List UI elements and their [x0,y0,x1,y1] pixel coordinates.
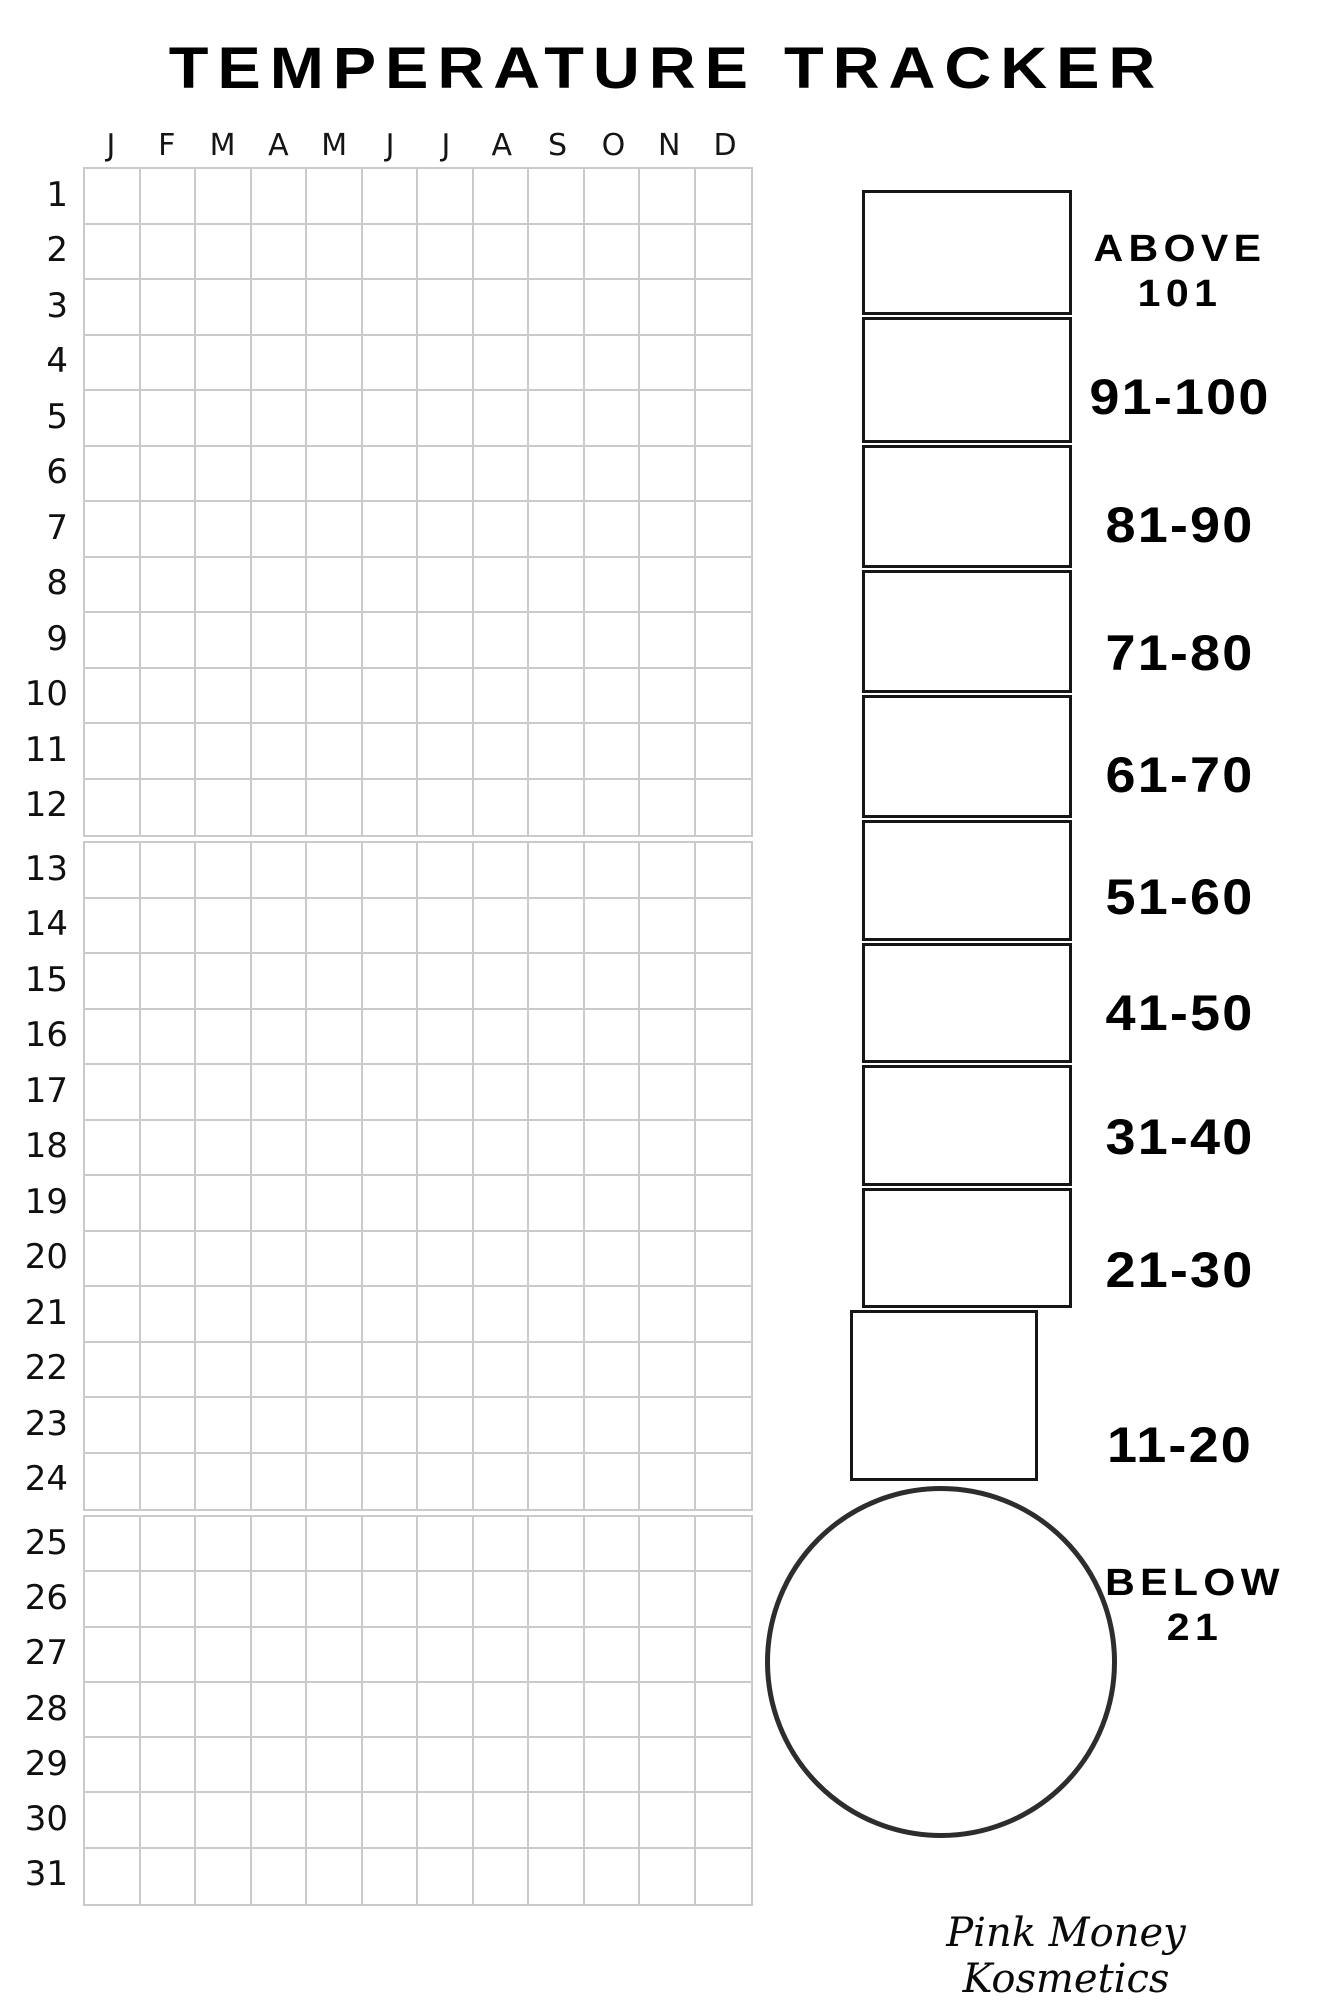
grid-cell[interactable] [696,1683,752,1738]
grid-cell[interactable] [141,1738,197,1793]
grid-cell[interactable] [85,502,141,558]
grid-cell[interactable] [141,169,197,225]
grid-cell[interactable] [141,280,197,336]
grid-cell[interactable] [363,558,419,614]
grid-cell[interactable] [363,724,419,780]
grid-cell[interactable] [307,613,363,669]
grid-cell[interactable] [474,502,530,558]
grid-cell[interactable] [418,780,474,836]
grid-cell[interactable] [363,1517,419,1572]
grid-cell[interactable] [418,1398,474,1454]
grid-cell[interactable] [196,1572,252,1627]
grid-cell[interactable] [529,502,585,558]
grid-cell[interactable] [196,1343,252,1399]
grid-cell[interactable] [307,1572,363,1627]
grid-cell[interactable] [640,558,696,614]
grid-cell[interactable] [141,1572,197,1627]
grid-cell[interactable] [418,336,474,392]
grid-cell[interactable] [696,954,752,1010]
grid-cell[interactable] [307,391,363,447]
grid-cell[interactable] [363,1454,419,1510]
grid-cell[interactable] [141,1793,197,1848]
grid-cell[interactable] [307,169,363,225]
grid-cell[interactable] [252,1287,308,1343]
grid-cell[interactable] [529,1454,585,1510]
grid-cell[interactable] [585,169,641,225]
grid-cell[interactable] [85,1572,141,1627]
grid-cell[interactable] [696,1454,752,1510]
grid-cell[interactable] [196,280,252,336]
grid-cell[interactable] [252,1343,308,1399]
grid-cell[interactable] [474,1232,530,1288]
grid-cell[interactable] [585,613,641,669]
grid-cell[interactable] [85,1849,141,1904]
grid-cell[interactable] [474,336,530,392]
grid-cell[interactable] [85,780,141,836]
grid-cell[interactable] [141,899,197,955]
grid-cell[interactable] [363,613,419,669]
grid-cell[interactable] [85,1517,141,1572]
grid-cell[interactable] [85,1010,141,1066]
grid-cell[interactable] [252,1232,308,1288]
grid-cell[interactable] [196,1065,252,1121]
grid-cell[interactable] [640,1232,696,1288]
grid-cell[interactable] [307,1398,363,1454]
grid-cell[interactable] [196,169,252,225]
grid-cell[interactable] [585,1454,641,1510]
grid-cell[interactable] [141,225,197,281]
grid-cell[interactable] [141,447,197,503]
grid-cell[interactable] [640,1793,696,1848]
grid-cell[interactable] [696,1343,752,1399]
grid-cell[interactable] [418,1628,474,1683]
grid-cell[interactable] [141,1343,197,1399]
grid-cell[interactable] [585,502,641,558]
grid-cell[interactable] [196,225,252,281]
thermometer-segment[interactable] [862,1188,1072,1308]
grid-cell[interactable] [474,1287,530,1343]
grid-cell[interactable] [363,225,419,281]
grid-cell[interactable] [585,1010,641,1066]
grid-cell[interactable] [585,1683,641,1738]
grid-cell[interactable] [307,1454,363,1510]
grid-cell[interactable] [640,780,696,836]
grid-cell[interactable] [529,1232,585,1288]
grid-cell[interactable] [529,613,585,669]
grid-cell[interactable] [640,1628,696,1683]
grid-cell[interactable] [363,1849,419,1904]
grid-cell[interactable] [696,447,752,503]
grid-cell[interactable] [474,1738,530,1793]
grid-cell[interactable] [307,1628,363,1683]
grid-cell[interactable] [418,954,474,1010]
grid-cell[interactable] [252,780,308,836]
grid-cell[interactable] [640,1517,696,1572]
grid-cell[interactable] [252,1683,308,1738]
grid-cell[interactable] [529,1343,585,1399]
grid-cell[interactable] [307,1287,363,1343]
grid-cell[interactable] [85,447,141,503]
grid-cell[interactable] [418,1572,474,1627]
grid-cell[interactable] [252,1176,308,1232]
grid-cell[interactable] [196,1398,252,1454]
grid-cell[interactable] [363,336,419,392]
grid-cell[interactable] [307,1793,363,1848]
grid-cell[interactable] [529,1398,585,1454]
grid-cell[interactable] [363,169,419,225]
grid-cell[interactable] [474,843,530,899]
grid-cell[interactable] [640,843,696,899]
grid-cell[interactable] [696,1849,752,1904]
grid-cell[interactable] [585,843,641,899]
grid-cell[interactable] [85,724,141,780]
grid-cell[interactable] [252,613,308,669]
grid-cell[interactable] [85,280,141,336]
grid-cell[interactable] [141,1454,197,1510]
grid-cell[interactable] [252,1628,308,1683]
grid-cell[interactable] [640,1176,696,1232]
grid-cell[interactable] [585,225,641,281]
grid-cell[interactable] [307,843,363,899]
grid-cell[interactable] [640,391,696,447]
grid-cell[interactable] [418,1343,474,1399]
grid-cell[interactable] [307,1343,363,1399]
grid-cell[interactable] [418,391,474,447]
grid-cell[interactable] [585,558,641,614]
grid-cell[interactable] [696,336,752,392]
grid-cell[interactable] [252,225,308,281]
grid-cell[interactable] [585,280,641,336]
grid-cell[interactable] [85,1343,141,1399]
grid-cell[interactable] [363,1121,419,1177]
grid-cell[interactable] [640,899,696,955]
grid-cell[interactable] [307,899,363,955]
grid-cell[interactable] [529,225,585,281]
grid-cell[interactable] [307,1232,363,1288]
grid-cell[interactable] [418,1738,474,1793]
grid-cell[interactable] [696,1232,752,1288]
grid-cell[interactable] [529,843,585,899]
grid-cell[interactable] [141,724,197,780]
grid-cell[interactable] [418,613,474,669]
thermometer-segment[interactable] [862,820,1072,941]
grid-cell[interactable] [418,843,474,899]
grid-cell[interactable] [252,1398,308,1454]
thermometer-bulb[interactable] [765,1486,1117,1838]
grid-cell[interactable] [640,613,696,669]
grid-cell[interactable] [696,899,752,955]
grid-cell[interactable] [196,780,252,836]
grid-cell[interactable] [196,724,252,780]
grid-cell[interactable] [585,1287,641,1343]
grid-cell[interactable] [307,1010,363,1066]
grid-cell[interactable] [529,558,585,614]
grid-cell[interactable] [196,1793,252,1848]
grid-cell[interactable] [529,1738,585,1793]
grid-cell[interactable] [529,169,585,225]
grid-cell[interactable] [640,1121,696,1177]
grid-cell[interactable] [585,1176,641,1232]
grid-cell[interactable] [252,1010,308,1066]
thermometer-segment[interactable] [862,695,1072,818]
grid-cell[interactable] [585,1065,641,1121]
thermometer-segment[interactable] [862,1065,1072,1186]
grid-cell[interactable] [196,843,252,899]
grid-cell[interactable] [252,954,308,1010]
grid-cell[interactable] [196,1849,252,1904]
grid-cell[interactable] [252,391,308,447]
grid-cell[interactable] [696,1572,752,1627]
grid-cell[interactable] [141,1121,197,1177]
grid-cell[interactable] [363,502,419,558]
grid-cell[interactable] [585,391,641,447]
grid-cell[interactable] [196,613,252,669]
grid-cell[interactable] [696,1121,752,1177]
grid-cell[interactable] [252,1121,308,1177]
grid-cell[interactable] [474,1793,530,1848]
grid-cell[interactable] [696,724,752,780]
grid-cell[interactable] [252,1065,308,1121]
grid-cell[interactable] [418,1454,474,1510]
grid-cell[interactable] [640,336,696,392]
grid-cell[interactable] [474,447,530,503]
grid-cell[interactable] [696,613,752,669]
grid-cell[interactable] [474,954,530,1010]
grid-cell[interactable] [307,780,363,836]
grid-cell[interactable] [307,280,363,336]
grid-cell[interactable] [474,1454,530,1510]
grid-cell[interactable] [640,225,696,281]
grid-cell[interactable] [196,899,252,955]
grid-cell[interactable] [640,954,696,1010]
grid-cell[interactable] [196,558,252,614]
grid-cell[interactable] [585,1793,641,1848]
grid-cell[interactable] [585,1121,641,1177]
grid-cell[interactable] [418,1793,474,1848]
grid-cell[interactable] [529,1010,585,1066]
grid-cell[interactable] [418,1065,474,1121]
grid-cell[interactable] [85,613,141,669]
grid-cell[interactable] [252,280,308,336]
grid-cell[interactable] [474,669,530,725]
grid-cell[interactable] [196,669,252,725]
grid-cell[interactable] [696,1738,752,1793]
grid-cell[interactable] [363,1628,419,1683]
grid-cell[interactable] [85,1793,141,1848]
grid-cell[interactable] [252,1849,308,1904]
grid-cell[interactable] [585,447,641,503]
grid-cell[interactable] [418,280,474,336]
grid-cell[interactable] [529,447,585,503]
grid-cell[interactable] [196,391,252,447]
grid-cell[interactable] [85,1683,141,1738]
grid-cell[interactable] [640,1287,696,1343]
grid-cell[interactable] [529,280,585,336]
grid-cell[interactable] [363,1343,419,1399]
grid-cell[interactable] [474,1343,530,1399]
grid-cell[interactable] [85,1176,141,1232]
grid-cell[interactable] [141,1628,197,1683]
grid-cell[interactable] [529,780,585,836]
grid-cell[interactable] [640,1343,696,1399]
grid-cell[interactable] [196,1454,252,1510]
grid-cell[interactable] [474,1398,530,1454]
grid-cell[interactable] [474,1683,530,1738]
grid-cell[interactable] [474,1849,530,1904]
grid-cell[interactable] [363,669,419,725]
grid-cell[interactable] [696,780,752,836]
grid-cell[interactable] [252,1793,308,1848]
grid-cell[interactable] [307,225,363,281]
grid-cell[interactable] [474,1121,530,1177]
grid-cell[interactable] [529,1793,585,1848]
grid-cell[interactable] [585,1628,641,1683]
grid-cell[interactable] [85,669,141,725]
grid-cell[interactable] [585,899,641,955]
grid-cell[interactable] [363,843,419,899]
thermometer-segment[interactable] [862,943,1072,1063]
grid-cell[interactable] [696,1793,752,1848]
grid-cell[interactable] [696,169,752,225]
grid-cell[interactable] [307,1517,363,1572]
grid-cell[interactable] [474,613,530,669]
grid-cell[interactable] [696,1398,752,1454]
grid-cell[interactable] [307,1849,363,1904]
grid-cell[interactable] [418,447,474,503]
grid-cell[interactable] [418,1232,474,1288]
grid-cell[interactable] [529,1287,585,1343]
grid-cell[interactable] [85,1287,141,1343]
grid-cell[interactable] [307,502,363,558]
grid-cell[interactable] [696,1287,752,1343]
grid-cell[interactable] [696,225,752,281]
grid-cell[interactable] [696,1065,752,1121]
grid-cell[interactable] [85,1232,141,1288]
grid-cell[interactable] [141,780,197,836]
grid-cell[interactable] [363,280,419,336]
grid-cell[interactable] [640,1010,696,1066]
grid-cell[interactable] [529,1121,585,1177]
grid-cell[interactable] [141,843,197,899]
grid-cell[interactable] [585,669,641,725]
grid-cell[interactable] [640,1398,696,1454]
grid-cell[interactable] [196,1287,252,1343]
grid-cell[interactable] [529,724,585,780]
grid-cell[interactable] [196,1738,252,1793]
grid-cell[interactable] [474,1065,530,1121]
grid-cell[interactable] [85,1398,141,1454]
grid-cell[interactable] [474,780,530,836]
grid-cell[interactable] [474,225,530,281]
grid-cell[interactable] [696,502,752,558]
grid-cell[interactable] [307,1121,363,1177]
grid-cell[interactable] [363,899,419,955]
grid-cell[interactable] [529,954,585,1010]
grid-cell[interactable] [141,336,197,392]
grid-cell[interactable] [418,1287,474,1343]
grid-cell[interactable] [474,558,530,614]
grid-cell[interactable] [85,1738,141,1793]
grid-cell[interactable] [141,502,197,558]
grid-cell[interactable] [141,669,197,725]
grid-cell[interactable] [141,558,197,614]
grid-cell[interactable] [696,843,752,899]
grid-cell[interactable] [196,1683,252,1738]
grid-cell[interactable] [418,225,474,281]
grid-cell[interactable] [474,1010,530,1066]
grid-cell[interactable] [696,1176,752,1232]
thermometer-segment[interactable] [862,570,1072,693]
grid-cell[interactable] [418,169,474,225]
grid-cell[interactable] [252,669,308,725]
grid-cell[interactable] [696,391,752,447]
grid-cell[interactable] [640,724,696,780]
grid-cell[interactable] [529,1683,585,1738]
grid-cell[interactable] [585,954,641,1010]
grid-cell[interactable] [418,1517,474,1572]
grid-cell[interactable] [85,954,141,1010]
grid-cell[interactable] [252,169,308,225]
grid-cell[interactable] [141,1287,197,1343]
grid-cell[interactable] [141,391,197,447]
grid-cell[interactable] [141,613,197,669]
grid-cell[interactable] [474,169,530,225]
grid-cell[interactable] [640,502,696,558]
thermometer-segment[interactable] [850,1310,1038,1481]
grid-cell[interactable] [252,1572,308,1627]
grid-cell[interactable] [141,1065,197,1121]
grid-cell[interactable] [585,1343,641,1399]
grid-cell[interactable] [196,447,252,503]
grid-cell[interactable] [196,1517,252,1572]
grid-cell[interactable] [196,1010,252,1066]
grid-cell[interactable] [529,1628,585,1683]
grid-cell[interactable] [585,1232,641,1288]
grid-cell[interactable] [418,669,474,725]
grid-cell[interactable] [85,336,141,392]
grid-cell[interactable] [640,1849,696,1904]
grid-cell[interactable] [141,1849,197,1904]
grid-cell[interactable] [529,336,585,392]
grid-cell[interactable] [474,1628,530,1683]
grid-cell[interactable] [196,1176,252,1232]
grid-cell[interactable] [640,1572,696,1627]
grid-cell[interactable] [529,1572,585,1627]
grid-cell[interactable] [418,1176,474,1232]
grid-cell[interactable] [196,336,252,392]
grid-cell[interactable] [696,558,752,614]
grid-cell[interactable] [85,1628,141,1683]
grid-cell[interactable] [307,724,363,780]
grid-cell[interactable] [418,1683,474,1738]
grid-cell[interactable] [418,558,474,614]
grid-cell[interactable] [418,899,474,955]
grid-cell[interactable] [141,954,197,1010]
grid-cell[interactable] [585,1738,641,1793]
grid-cell[interactable] [363,1232,419,1288]
grid-cell[interactable] [196,502,252,558]
grid-cell[interactable] [363,391,419,447]
grid-cell[interactable] [252,336,308,392]
grid-cell[interactable] [640,1454,696,1510]
grid-cell[interactable] [474,280,530,336]
grid-cell[interactable] [363,1683,419,1738]
grid-cell[interactable] [363,1065,419,1121]
grid-cell[interactable] [85,1065,141,1121]
grid-cell[interactable] [252,1738,308,1793]
grid-cell[interactable] [141,1176,197,1232]
grid-cell[interactable] [363,1287,419,1343]
